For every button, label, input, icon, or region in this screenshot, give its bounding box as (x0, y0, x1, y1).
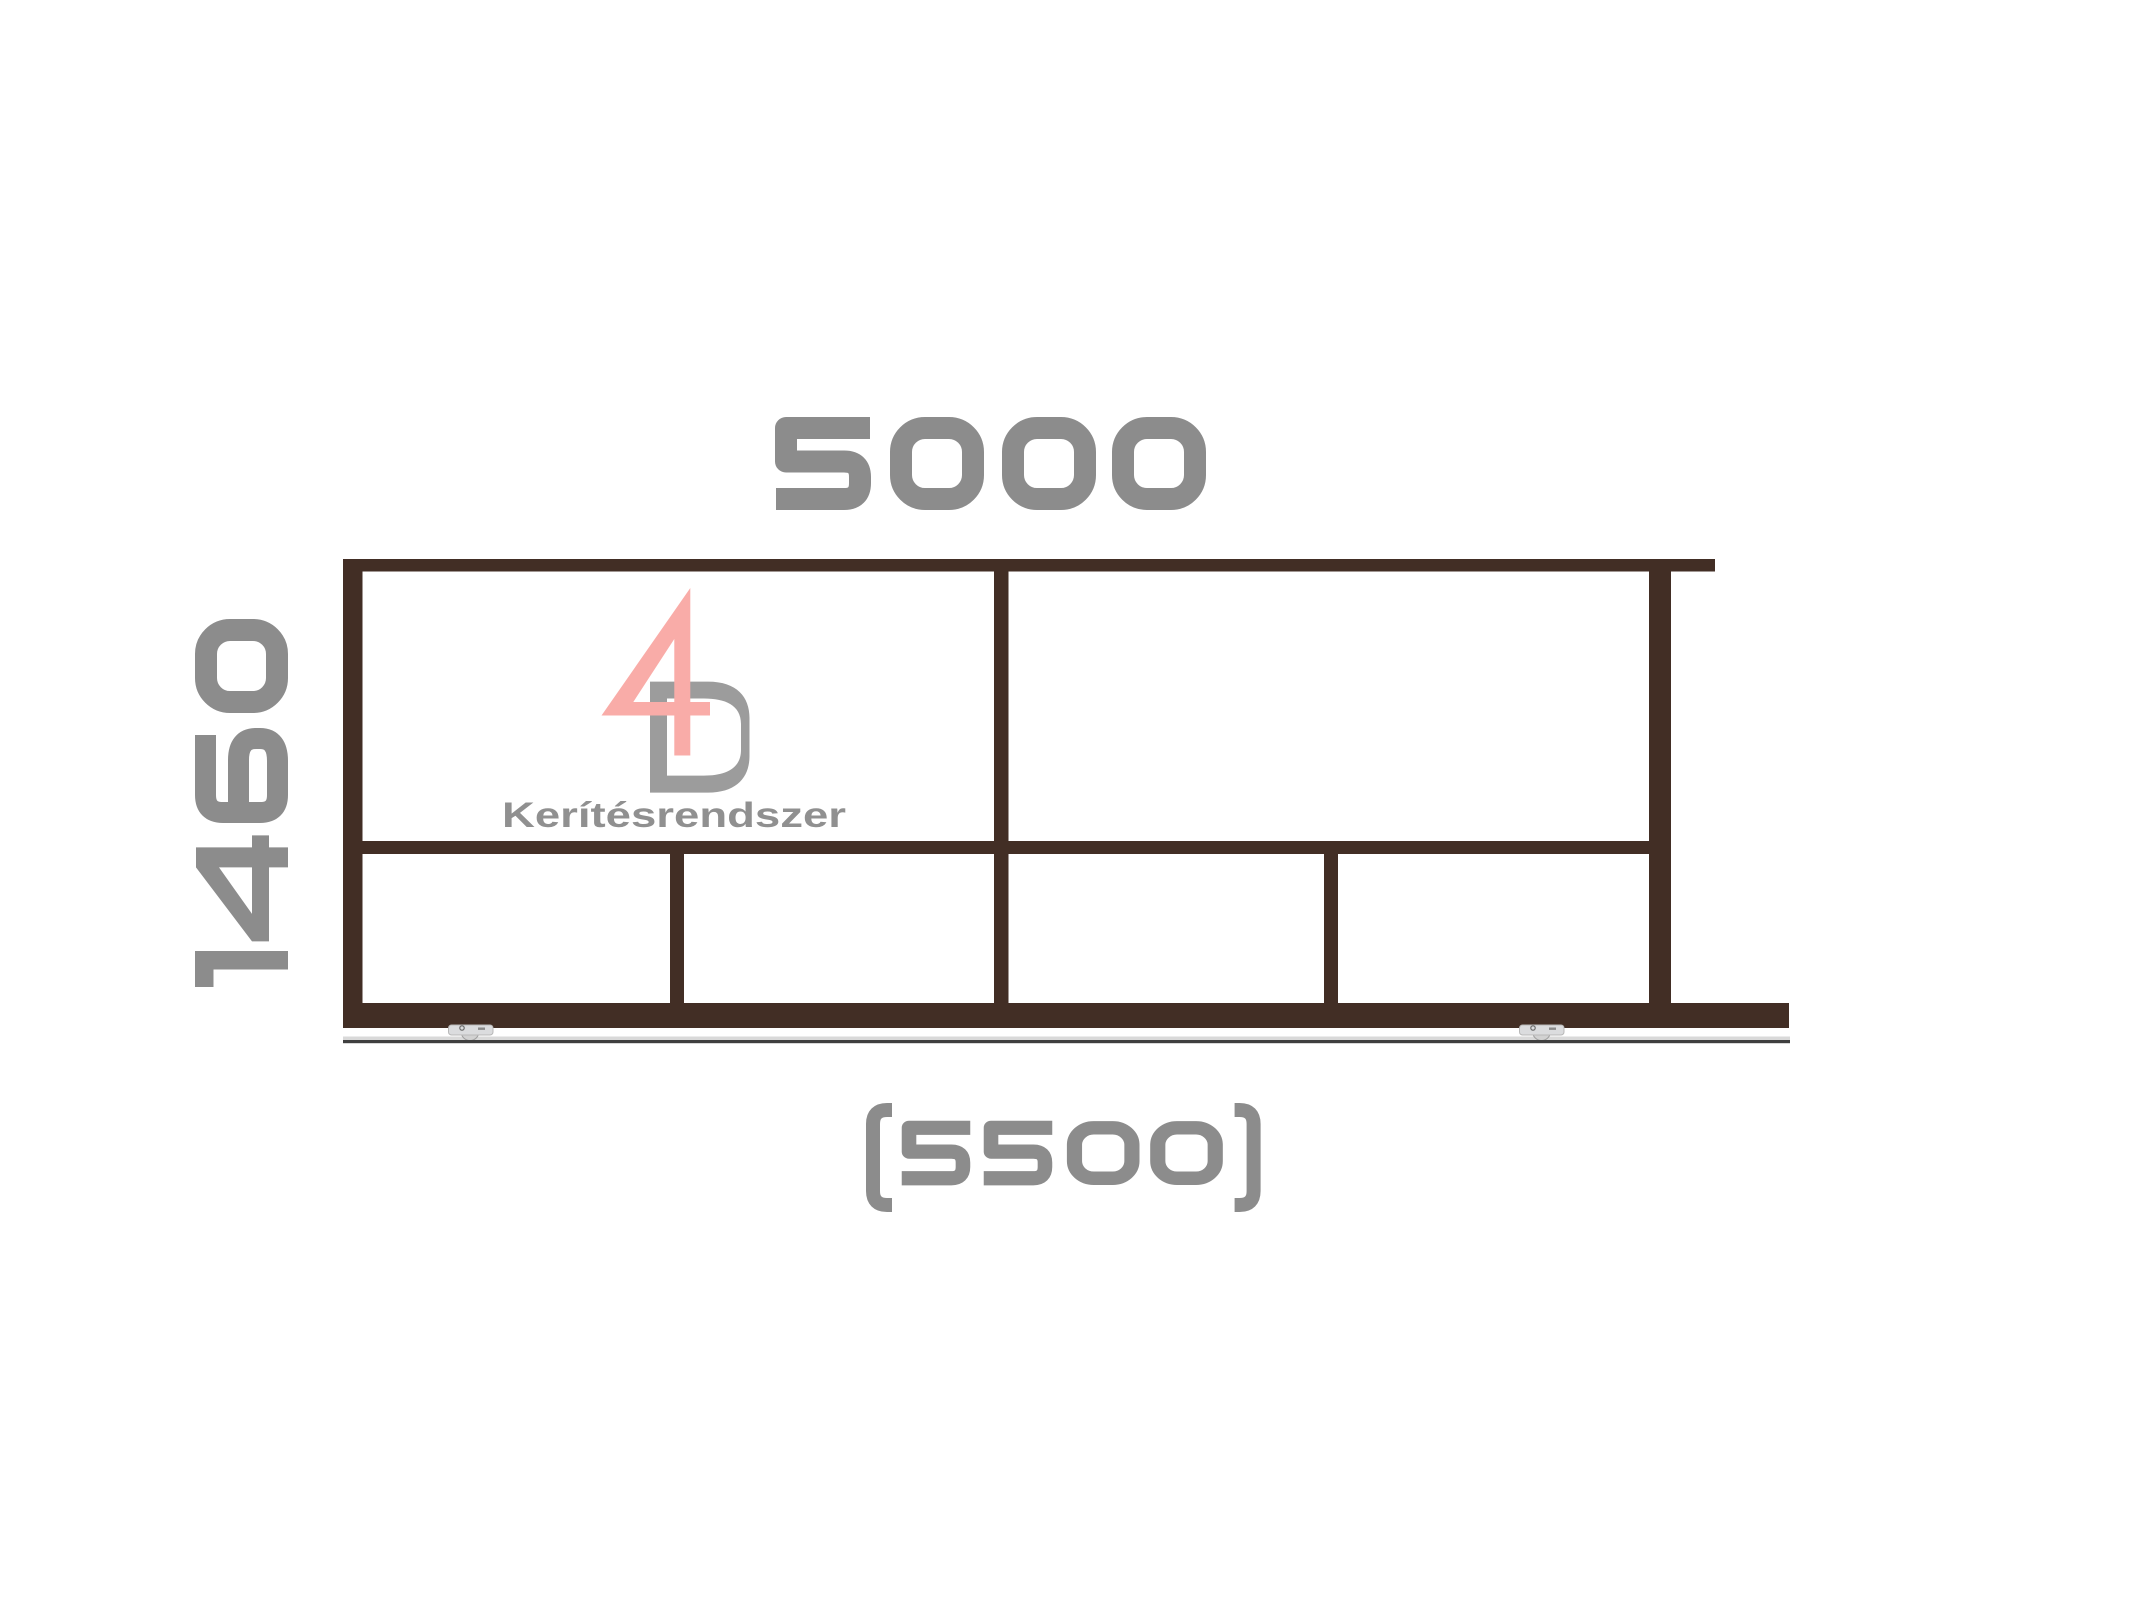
svg-text:Kerítésrendszer: Kerítésrendszer (502, 796, 846, 835)
